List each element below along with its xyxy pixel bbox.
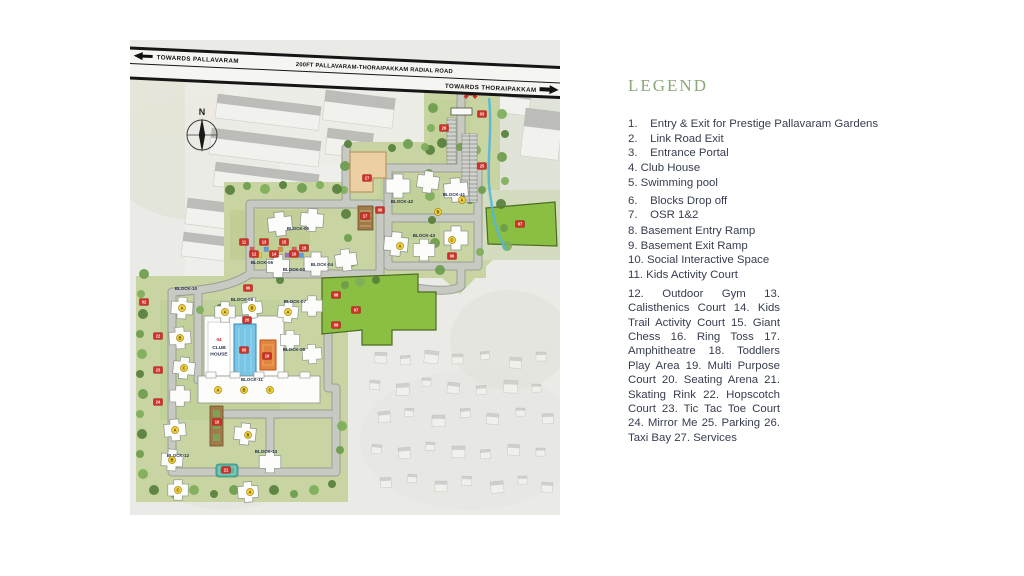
tree-icon — [328, 480, 336, 488]
legend-item: 6. Blocks Drop off — [628, 194, 878, 209]
block-label: BLOCK-07 — [284, 299, 307, 304]
village-building — [536, 352, 546, 361]
map-number-badge: 12 — [250, 251, 259, 258]
tower-letter-badge: C — [267, 387, 274, 394]
svg-text:C: C — [268, 388, 271, 393]
map-number-badge: 03 — [478, 111, 487, 118]
block-label: BLOCK-10 — [175, 286, 198, 291]
svg-text:A: A — [398, 244, 401, 249]
tree-icon — [309, 485, 319, 495]
village-building — [480, 449, 491, 459]
tower-letter-badge: B — [169, 457, 176, 464]
tree-icon — [332, 184, 342, 194]
village-building — [378, 411, 391, 423]
svg-text:10: 10 — [215, 420, 220, 425]
svg-text:A: A — [286, 310, 289, 315]
legend-item: 3. Entrance Portal — [628, 146, 878, 161]
map-number-badge: 07 — [516, 221, 525, 228]
svg-text:22: 22 — [156, 334, 161, 339]
svg-text:06: 06 — [378, 208, 383, 213]
village-building — [407, 474, 417, 483]
entrance-portal — [451, 108, 472, 115]
village-building — [532, 384, 541, 392]
tree-icon — [344, 234, 352, 242]
village-building — [371, 444, 382, 454]
tree-icon — [136, 410, 144, 418]
svg-text:06: 06 — [450, 254, 455, 259]
tree-icon — [435, 265, 445, 275]
village-building — [422, 378, 431, 386]
svg-text:B: B — [246, 433, 249, 438]
tower-letter-badge: A — [285, 309, 292, 316]
svg-text:17: 17 — [363, 214, 368, 219]
map-number-badge: 08 — [332, 292, 341, 299]
tower-letter-badge: A — [222, 309, 229, 316]
tree-icon — [138, 469, 148, 479]
village-building — [486, 413, 499, 425]
svg-text:B: B — [250, 306, 253, 311]
tree-icon — [136, 370, 144, 378]
tower-letter-badge: A — [397, 243, 404, 250]
village-building — [536, 448, 545, 456]
legend-item: 11. Kids Activity Court — [628, 268, 878, 283]
legend-item: 8. Basement Entry Ramp — [628, 224, 878, 239]
map-number-badge: 20 — [243, 317, 252, 324]
tree-icon — [139, 269, 149, 279]
village-building — [435, 481, 447, 492]
tree-icon — [500, 224, 508, 232]
tree-icon — [341, 281, 349, 289]
tree-icon — [196, 306, 204, 314]
svg-text:03: 03 — [480, 112, 485, 117]
svg-text:A: A — [180, 306, 183, 311]
map-number-badge: 14 — [270, 251, 279, 258]
tree-icon — [355, 277, 365, 287]
svg-text:16: 16 — [292, 252, 297, 257]
map-number-badge: 02 — [140, 299, 149, 306]
svg-text:13: 13 — [262, 240, 267, 245]
club-house-label-1: CLUB — [212, 345, 226, 351]
legend-paragraph: 12. Outdoor Gym 13. Calisthenics Court 1… — [628, 287, 780, 445]
svg-text:11: 11 — [242, 240, 247, 245]
tree-icon — [428, 216, 436, 224]
village-building — [447, 382, 460, 394]
svg-text:A: A — [223, 310, 226, 315]
village-building — [398, 447, 411, 459]
map-number-badge: 06 — [244, 285, 253, 292]
svg-text:07: 07 — [518, 222, 523, 227]
legend-item: 1. Entry & Exit for Prestige Pallavaram … — [628, 117, 878, 132]
tree-icon — [421, 143, 429, 151]
tree-icon — [403, 139, 413, 149]
tower-letter-badge: B — [249, 305, 256, 312]
svg-text:19: 19 — [265, 354, 270, 359]
svg-text:23: 23 — [156, 368, 161, 373]
map-number-badge: 26 — [440, 125, 449, 132]
village-building — [424, 350, 439, 364]
tree-icon — [137, 429, 147, 439]
legend-list: 1. Entry & Exit for Prestige Pallavaram … — [628, 117, 878, 283]
map-number-badge: 24 — [154, 399, 163, 406]
tree-icon — [137, 290, 145, 298]
village-building — [400, 355, 411, 365]
club-house-label-2: HOUSE — [210, 352, 228, 358]
block-label: BLOCK-43 — [413, 233, 436, 238]
tree-icon — [269, 485, 279, 495]
block-label: BLOCK-04 — [311, 262, 334, 267]
village-building — [462, 476, 472, 486]
tree-icon — [136, 330, 144, 338]
village-building — [509, 357, 522, 369]
svg-text:B: B — [178, 336, 181, 341]
tree-icon — [497, 109, 507, 119]
map-number-badge: 15 — [280, 239, 289, 246]
tower-letter-badge: C — [181, 365, 188, 372]
svg-text:B: B — [436, 210, 439, 215]
block-label: BLOCK-08 — [283, 347, 306, 352]
tree-icon — [428, 103, 438, 113]
village-building — [518, 476, 527, 484]
tower-letter-badge: A — [459, 197, 466, 204]
tree-icon — [341, 209, 351, 219]
block-label: BLOCK-03 — [283, 267, 306, 272]
tree-icon — [138, 309, 148, 319]
svg-text:08: 08 — [334, 293, 339, 298]
village-building — [369, 380, 380, 390]
tree-icon — [344, 140, 352, 148]
block-label: BLOCK-13 — [255, 449, 278, 454]
tree-icon — [501, 177, 509, 185]
tree-icon — [336, 446, 344, 454]
tree-icon — [290, 490, 298, 498]
village-building — [380, 477, 392, 488]
tower-letter-badge: A — [172, 427, 179, 434]
tree-icon — [189, 485, 199, 495]
tree-icon — [340, 161, 350, 171]
tree-icon — [260, 184, 270, 194]
svg-text:C: C — [450, 238, 453, 243]
map-number-badge: 07 — [352, 307, 361, 314]
village-building — [460, 408, 471, 418]
svg-text:05: 05 — [242, 348, 247, 353]
social-interactive-strip — [210, 406, 223, 446]
village-building — [404, 408, 414, 417]
compass-north-label: N — [199, 107, 206, 117]
map-number-badge: 10 — [213, 419, 222, 426]
map-number-badge: 21 — [222, 467, 231, 474]
svg-text:B: B — [170, 458, 173, 463]
village-building — [542, 413, 554, 423]
village-building — [452, 446, 465, 458]
map-number-badge: 17 — [361, 213, 370, 220]
kids-court-tile — [285, 253, 290, 258]
tree-icon — [337, 421, 347, 431]
map-number-badge: 16 — [290, 251, 299, 258]
tree-icon — [225, 185, 235, 195]
tower-letter-badge: B — [177, 335, 184, 342]
svg-text:18: 18 — [302, 246, 307, 251]
village-building — [490, 481, 504, 494]
legend-item: 5. Swimming pool — [628, 176, 878, 191]
block-label: BLOCK-09 — [231, 297, 254, 302]
svg-text:20: 20 — [245, 318, 250, 323]
map-number-badge: 19 — [263, 353, 272, 360]
map-number-badge: 11 — [240, 239, 249, 246]
map-number-badge: 09 — [332, 322, 341, 329]
tree-icon — [437, 138, 447, 148]
village-building — [480, 351, 490, 360]
tower-letter-badge: B — [245, 432, 252, 439]
club-house-number: 04 — [216, 337, 222, 342]
svg-text:C: C — [182, 366, 185, 371]
tower-letter-badge: B — [241, 387, 248, 394]
legend-item: 10. Social Interactive Space — [628, 253, 878, 268]
village-building — [516, 408, 525, 416]
tree-icon — [501, 130, 509, 138]
block-label: BLOCK-42 — [391, 199, 414, 204]
svg-text:C: C — [176, 488, 179, 493]
svg-text:A: A — [216, 388, 219, 393]
map-number-badge: 27 — [363, 175, 372, 182]
map-number-badge: 05 — [240, 347, 249, 354]
svg-text:02: 02 — [142, 300, 147, 305]
svg-text:26: 26 — [442, 126, 447, 131]
kids-court-tile — [278, 247, 283, 252]
svg-text:15: 15 — [282, 240, 287, 245]
map-number-badge: 13 — [260, 239, 269, 246]
svg-text:27: 27 — [365, 176, 370, 181]
tree-icon — [476, 248, 484, 256]
tower-letter-badge: A — [215, 387, 222, 394]
kids-court-tile — [299, 253, 304, 258]
block-label: BLOCK-11 — [241, 377, 264, 382]
village-building — [374, 352, 387, 363]
svg-text:06: 06 — [246, 286, 251, 291]
map-number-badge: 06 — [376, 207, 385, 214]
tree-icon — [279, 181, 287, 189]
tree-icon — [210, 490, 218, 498]
village-building — [426, 442, 435, 451]
tree-icon — [478, 186, 486, 194]
tree-icon — [388, 144, 396, 152]
kids-court-tile — [264, 247, 269, 252]
legend-title: LEGEND — [628, 76, 878, 96]
tree-icon — [136, 450, 144, 458]
tree-icon — [372, 276, 380, 284]
tree-icon — [297, 183, 307, 193]
map-number-badge: 06 — [448, 253, 457, 260]
village-building — [507, 444, 520, 456]
map-number-badge: 18 — [300, 245, 309, 252]
tower-letter-badge: A — [179, 305, 186, 312]
block-label: BLOCK-06 — [251, 260, 274, 265]
tree-icon — [137, 349, 147, 359]
svg-text:07: 07 — [354, 308, 359, 313]
svg-text:A: A — [248, 490, 251, 495]
svg-text:09: 09 — [334, 323, 339, 328]
svg-text:24: 24 — [156, 400, 161, 405]
map-number-badge: 25 — [478, 163, 487, 170]
map-number-badge: 22 — [154, 333, 163, 340]
tree-icon — [243, 182, 251, 190]
legend-item: 9. Basement Exit Ramp — [628, 239, 878, 254]
tree-icon — [427, 124, 435, 132]
legend-panel: LEGEND 1. Entry & Exit for Prestige Pall… — [628, 76, 878, 445]
tree-icon — [316, 181, 324, 189]
tower-letter-badge: C — [175, 487, 182, 494]
block-label: BLOCK-05 — [287, 226, 310, 231]
tree-icon — [496, 199, 506, 209]
svg-text:12: 12 — [252, 252, 257, 257]
tree-icon — [497, 152, 507, 162]
svg-text:A: A — [460, 198, 463, 203]
village-building — [452, 354, 463, 364]
svg-text:14: 14 — [272, 252, 277, 257]
map-number-badge: 23 — [154, 367, 163, 374]
legend-item: 2. Link Road Exit — [628, 132, 878, 147]
legend-item: 7. OSR 1&2 — [628, 208, 878, 223]
village-building — [476, 385, 487, 395]
svg-text:A: A — [173, 428, 176, 433]
svg-text:25: 25 — [480, 164, 485, 169]
tree-icon — [149, 485, 159, 495]
tower-letter-badge: C — [449, 237, 456, 244]
site-master-plan-map: 04 CLUB HOUSE BLOCK-42BLOCK-41BLOCK-43BL… — [130, 40, 560, 515]
svg-text:21: 21 — [224, 468, 229, 473]
village-building — [396, 383, 410, 395]
tower-letter-badge: A — [247, 489, 254, 496]
village-building — [503, 380, 518, 393]
legend-item: 4. Club House — [628, 161, 878, 176]
existing-building — [520, 108, 560, 160]
tree-icon — [138, 389, 148, 399]
village-building — [432, 415, 445, 427]
village-building — [541, 482, 553, 493]
tower-letter-badge: B — [435, 209, 442, 216]
svg-text:B: B — [242, 388, 245, 393]
